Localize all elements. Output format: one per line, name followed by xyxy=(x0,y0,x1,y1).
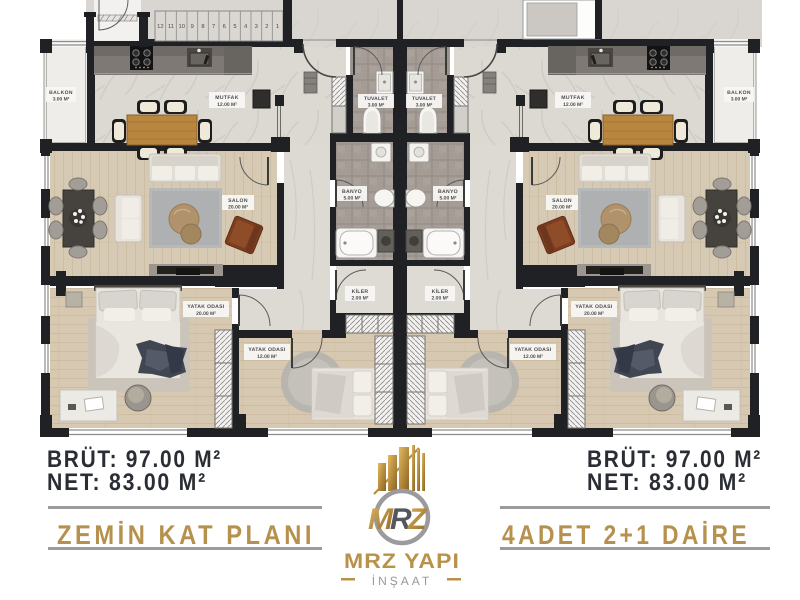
svg-text:10: 10 xyxy=(178,23,184,30)
svg-text:4ADET 2+1 DAİRE: 4ADET 2+1 DAİRE xyxy=(502,520,750,550)
svg-text:NET: 83.00 M²: NET: 83.00 M² xyxy=(587,469,747,496)
svg-text:NET: 83.00 M²: NET: 83.00 M² xyxy=(47,469,207,496)
svg-text:BANYO: BANYO xyxy=(342,189,362,195)
svg-text:20.00 M²: 20.00 M² xyxy=(584,311,604,317)
svg-text:3.00 M²: 3.00 M² xyxy=(53,97,70,103)
svg-text:3.00 M²: 3.00 M² xyxy=(416,103,433,109)
svg-text:BANYO: BANYO xyxy=(438,189,458,195)
svg-text:7: 7 xyxy=(212,24,215,30)
svg-text:5.00 M²: 5.00 M² xyxy=(344,196,361,202)
svg-text:5.00 M²: 5.00 M² xyxy=(440,196,457,202)
svg-text:ZEMİN KAT PLANI: ZEMİN KAT PLANI xyxy=(57,520,315,550)
svg-text:3.00 M²: 3.00 M² xyxy=(368,103,385,109)
svg-text:TUVALET: TUVALET xyxy=(364,96,388,102)
svg-text:KİLER: KİLER xyxy=(432,288,449,295)
svg-text:11: 11 xyxy=(168,24,174,30)
svg-text:KİLER: KİLER xyxy=(352,288,369,295)
svg-text:12.00 M²: 12.00 M² xyxy=(257,354,277,360)
svg-text:1: 1 xyxy=(276,24,279,30)
svg-text:2: 2 xyxy=(265,23,268,30)
svg-text:MUTFAK: MUTFAK xyxy=(215,95,239,101)
svg-text:12.00 M²: 12.00 M² xyxy=(217,102,237,108)
svg-text:6: 6 xyxy=(223,23,226,30)
svg-text:3: 3 xyxy=(255,23,258,30)
svg-text:20.00 M²: 20.00 M² xyxy=(228,205,248,211)
svg-text:20.00 M²: 20.00 M² xyxy=(196,311,216,317)
svg-text:Z: Z xyxy=(407,503,428,536)
svg-text:BALKON: BALKON xyxy=(49,90,73,96)
svg-text:SALON: SALON xyxy=(552,198,572,204)
svg-text:20.00 M²: 20.00 M² xyxy=(552,205,572,211)
svg-text:8: 8 xyxy=(201,23,204,30)
svg-text:12: 12 xyxy=(157,23,163,30)
svg-text:12.00 M²: 12.00 M² xyxy=(523,354,543,360)
svg-text:2.00 M²: 2.00 M² xyxy=(432,296,449,302)
svg-text:YATAK ODASI: YATAK ODASI xyxy=(514,347,551,353)
svg-text:3.00 M²: 3.00 M² xyxy=(731,97,748,103)
svg-text:MRZ YAPI: MRZ YAPI xyxy=(344,550,460,573)
svg-text:2.00 M²: 2.00 M² xyxy=(352,296,369,302)
svg-text:BALKON: BALKON xyxy=(727,90,751,96)
svg-text:12.00 M²: 12.00 M² xyxy=(563,102,583,108)
svg-text:MUTFAK: MUTFAK xyxy=(561,95,585,101)
svg-text:TUVALET: TUVALET xyxy=(412,96,436,102)
svg-text:YATAK ODASI: YATAK ODASI xyxy=(248,347,285,353)
svg-text:5: 5 xyxy=(233,24,236,30)
svg-text:YATAK ODASI: YATAK ODASI xyxy=(187,304,224,310)
svg-text:İNŞAAT: İNŞAAT xyxy=(372,574,432,588)
svg-text:YATAK ODASI: YATAK ODASI xyxy=(575,304,612,310)
svg-text:9: 9 xyxy=(191,23,194,30)
svg-text:SALON: SALON xyxy=(228,198,248,204)
